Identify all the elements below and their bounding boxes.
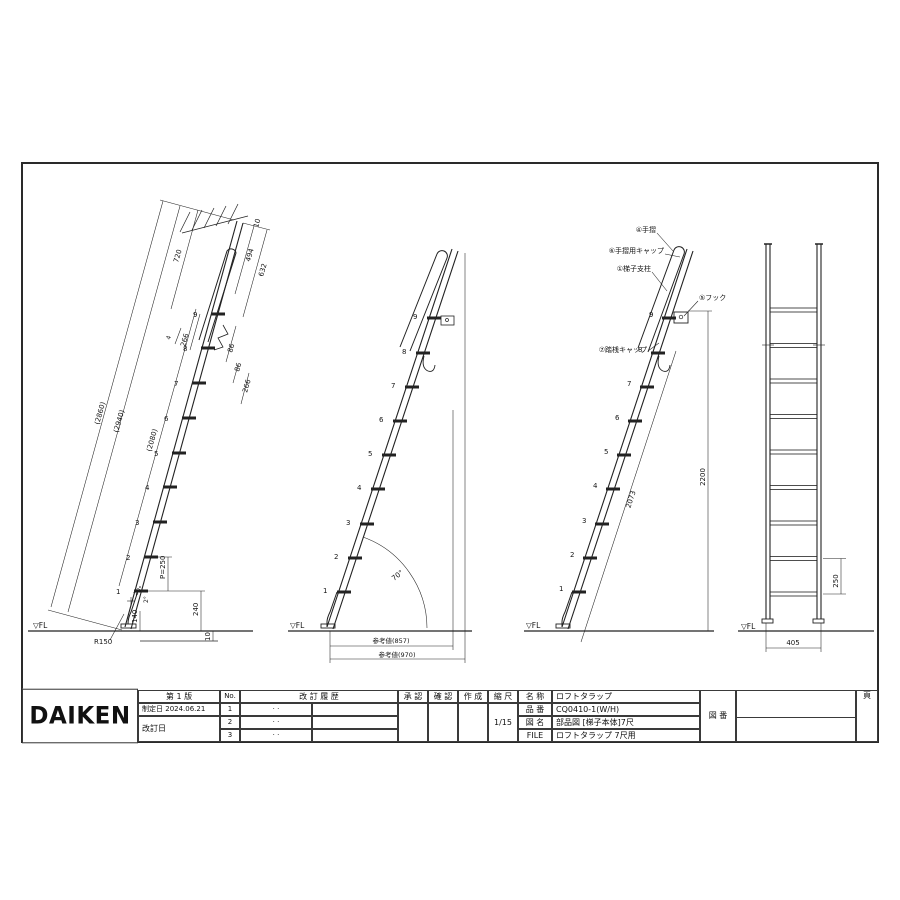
view-front [738,244,874,652]
rev-row-desc [312,703,398,716]
rung-no: 9 [413,313,417,321]
callout-post: ①梯子支柱 [617,264,651,273]
rung-no: 9 [193,311,197,319]
rev-row-desc [312,716,398,729]
callout-handrail-cap: ⑥手摺用キャップ [609,246,664,255]
dim-240: 240 [192,603,200,616]
handrail-loop [199,249,236,342]
rev-row-date: · · [240,703,312,716]
dim-405: 405 [786,639,799,647]
drawing-no-label: 図 番 [700,690,736,742]
page-cell: 頁 [856,690,878,742]
base-plate [813,619,824,623]
approval-value [398,703,428,742]
dim-250: 250 [832,574,840,587]
dimension-lines [330,253,465,663]
view-side-angle-texts: 70° 参考値(857) 参考値(970) 1 2 3 4 5 6 7 8 9 … [290,313,417,659]
dim-632: 632 [257,262,268,277]
view-side-parts-texts: ④手摺 ⑥手摺用キャップ ①梯子支柱 ⑤フック ⑦踏桟キャップ 2073 220… [526,225,726,630]
rung-no: 5 [604,448,608,456]
fl-mark: ▽FL [526,621,541,630]
dim-2200: 2200 [699,468,707,486]
dim-86-a: 86 [226,342,236,353]
confirm-value [428,703,458,742]
dimension-lines [766,559,846,653]
dim-720: 720 [172,248,183,263]
dim-266-b: 266 [241,378,253,394]
rung-no: 1 [116,588,120,596]
dim-r150: R150 [94,638,112,646]
rev-row-date: · · [240,716,312,729]
file-label: FILE [518,729,552,742]
fl-mark: ▽FL [741,622,756,631]
enacted-label: 制定日 [142,706,163,713]
hook [423,356,435,371]
drawing-name-value: 部品図 [梯子本体]7尺 [552,716,700,729]
scale-value: 1/15 [488,703,518,742]
rung-no: 6 [164,415,169,423]
company-logo: DAIKEN [22,689,138,744]
enacted-date: 2024.06.21 [165,706,205,713]
weld-mark: 4 [165,335,173,341]
rung-no: 4 [357,484,362,492]
dimension-lines [581,311,712,642]
rev-row-no: 2 [220,716,240,729]
drawing-canvas: (2860) (2940) (2080) 720 494 632 10 266 … [0,0,900,900]
rev-no-header: No. [220,690,240,703]
revision-history-header: 改 訂 履 歴 [240,690,398,703]
rung-no: 5 [154,450,158,458]
divider [737,717,855,718]
drawing-sheet: (2860) (2940) (2080) 720 494 632 10 266 … [0,0,900,900]
view-side-dim-texts: (2860) (2940) (2080) 720 494 632 10 266 … [33,218,269,646]
scale-header: 縮 尺 [488,690,518,703]
rung-no: 9 [649,311,653,319]
part-no-label: 品 番 [518,703,552,716]
dim-2073: 2073 [625,490,638,509]
drawing-no-value [736,690,856,742]
dim-2860: (2860) [93,401,107,426]
fl-mark: ▽FL [33,621,48,630]
rev-row-date: · · [240,729,312,742]
rung-no: 6 [379,416,384,424]
rung-no: 7 [174,380,178,388]
dim-10-top: 10 [252,218,262,229]
edition-label: 第 1 版 [138,690,220,703]
rung-no: 2 [570,551,574,559]
dim-140: 140 [131,610,139,623]
rung-no: 3 [582,517,586,525]
rung-no: 4 [593,482,598,490]
hook-plate [441,316,454,325]
file-value: ロフトタラップ 7尺用 [552,729,700,742]
rungs-side [134,314,225,591]
rung-no: 5 [368,450,372,458]
rung-no: 7 [627,380,631,388]
dim-ref-970: 参考値(970) [379,650,416,659]
dim-ref-857: 参考値(857) [373,636,410,645]
rung-no: 2 [334,553,338,561]
rung-no: 3 [135,519,139,527]
rung-no: 4 [145,484,150,492]
enacted-date-cell: 制定日 2024.06.21 [138,703,220,716]
hook-bracket [214,325,228,350]
confirm-header: 確 認 [428,690,458,703]
rung-no: 8 [638,346,642,354]
drawing-name-label: 図 名 [518,716,552,729]
base-plate [762,619,773,623]
name-value: ロフトタラップ [552,690,700,703]
dim-86-b: 86 [233,361,243,372]
dim-2940: (2940) [112,409,126,434]
rev-row-desc [312,729,398,742]
rung-no: 8 [183,345,187,353]
dim-angle-2: 2° [143,596,150,603]
view-side-angle [288,249,472,663]
base-plate [121,624,136,628]
dim-494: 494 [244,247,256,263]
part-no-value: CQ0410-1(W/H) [552,703,700,716]
revised-date-label: 改訂日 [138,716,220,742]
fl-mark: ▽FL [290,621,305,630]
hook [658,356,670,371]
rung-no: 7 [391,382,395,390]
rung-no: 3 [346,519,350,527]
hook-plate-hole [446,319,449,322]
rung-no: 1 [559,585,563,593]
rung-no: 1 [323,587,327,595]
callout-handrail: ④手摺 [636,225,656,234]
name-label: 名 称 [518,690,552,703]
create-value [458,703,488,742]
rev-row-no: 3 [220,729,240,742]
dim-p250: P=250 [159,556,167,579]
create-header: 作 成 [458,690,488,703]
view-side-parts [524,233,714,642]
dim-10-floor: 10 [204,632,212,641]
dim-angle-70: 70° [390,569,405,583]
rung-no: 2 [126,554,130,562]
callout-hook: ⑤フック [699,294,726,302]
view-side-dimensioned [28,200,270,641]
rev-row-no: 1 [220,703,240,716]
approval-header: 承 認 [398,690,428,703]
rung-no: 8 [402,348,406,356]
rung-no: 6 [615,414,620,422]
rungs-front [770,308,817,596]
hook-plate-hole [679,315,683,319]
view-front-texts: 250 405 ▽FL [741,574,840,647]
